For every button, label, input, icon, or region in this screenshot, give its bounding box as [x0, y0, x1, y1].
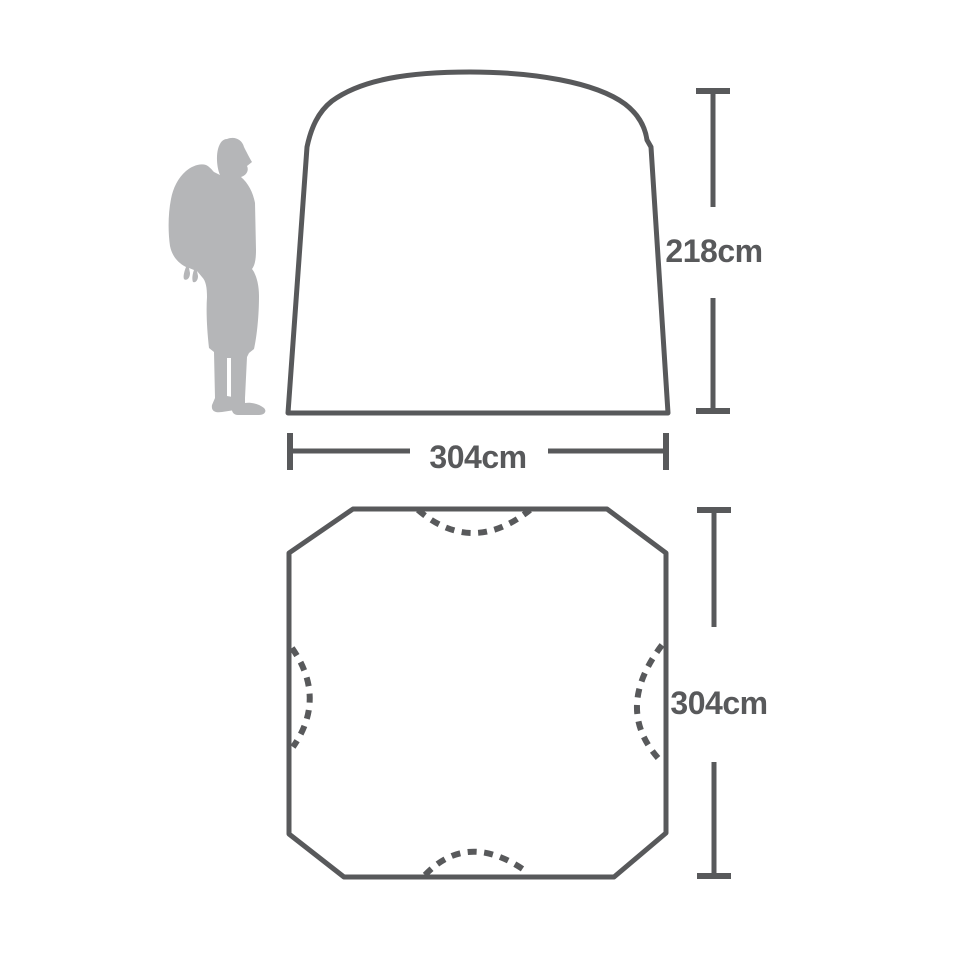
- height-dimension-label: 218cm: [665, 233, 762, 269]
- floor-plan-view: [289, 509, 666, 877]
- tent-dimensions-diagram: 218cm 304cm 304cm: [0, 0, 960, 960]
- door-arc-bottom-icon: [425, 852, 527, 875]
- width-dimension: 304cm: [290, 433, 666, 475]
- door-arc-right-icon: [637, 645, 662, 758]
- height-dimension: 218cm: [665, 91, 762, 411]
- diagram-canvas: 218cm 304cm 304cm: [0, 0, 960, 960]
- width-dimension-label: 304cm: [429, 439, 526, 475]
- tent-floor-plan-outline: [289, 509, 666, 877]
- door-arc-top-icon: [418, 510, 530, 533]
- depth-dimension: 304cm: [670, 510, 767, 876]
- depth-dimension-label: 304cm: [670, 685, 767, 721]
- tent-side-elevation-outline: [288, 72, 668, 413]
- hiker-silhouette-icon: [169, 138, 266, 415]
- door-arc-left-icon: [292, 648, 310, 747]
